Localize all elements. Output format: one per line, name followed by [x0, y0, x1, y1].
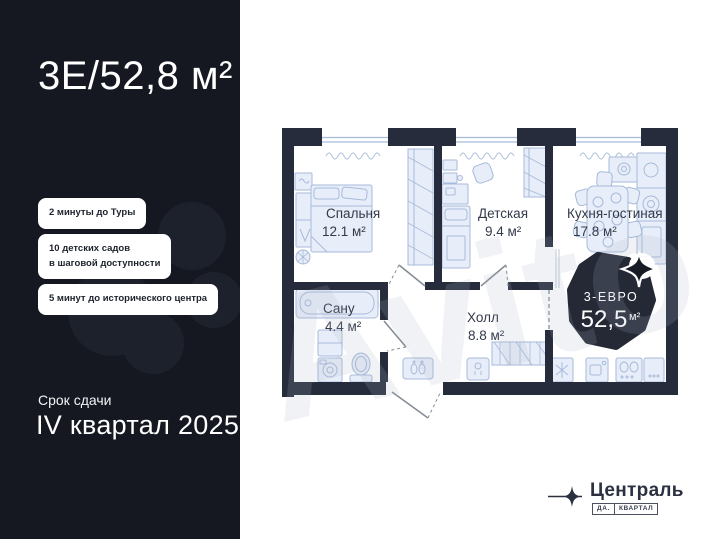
- coat-closet: [492, 342, 549, 365]
- room-area-bedroom: 12.1 м²: [322, 224, 366, 239]
- chair: [596, 172, 612, 188]
- info-panel: 3Е/52,8 м² 2 минуты до Туры 10 детских с…: [0, 0, 240, 539]
- room-name-kitchen: Кухня-гостиная: [567, 206, 663, 221]
- wall-bedroom-bottom: [294, 282, 387, 290]
- wall-bottom: [282, 382, 678, 395]
- ad-canvas: Спальня 12.1 м² Детская 9.4 м² Кухня-гос…: [0, 0, 720, 539]
- deadline-label: Срок сдачи: [38, 392, 111, 408]
- closet-strip: [408, 149, 433, 265]
- shelf: [443, 173, 457, 183]
- cabinet: [644, 358, 664, 382]
- windows: [322, 134, 641, 146]
- room-area-kitchen: 17.8 м²: [573, 224, 617, 239]
- sparkle-line-icon: [548, 483, 586, 509]
- door-entrance: [392, 392, 428, 418]
- room-name-bath: Сану: [323, 301, 355, 316]
- door-bedroom: [399, 265, 425, 286]
- logo-tag-da: ДА.: [592, 503, 615, 515]
- deadline-value: IV квартал 2025: [36, 410, 239, 441]
- pillow: [341, 187, 367, 201]
- wall-bathroom: [380, 282, 388, 320]
- floor-plan: Спальня 12.1 м² Детская 9.4 м² Кухня-гос…: [280, 124, 680, 429]
- room-name-bedroom: Спальня: [326, 206, 380, 221]
- developer-logo: Централь ДА. КВАРТАЛ: [548, 481, 684, 515]
- room-name-kids: Детская: [478, 206, 528, 221]
- feature-badge-2: 10 детских садов в шаговой доступности: [38, 234, 171, 279]
- hall-furniture: [403, 342, 549, 380]
- stove: [616, 358, 642, 382]
- logo-tag-kvartal: КВАРТАЛ: [614, 503, 658, 515]
- pillow: [445, 209, 467, 220]
- wall-kids-bottom: [442, 282, 480, 290]
- pillar: [388, 128, 456, 146]
- logo-brand: Централь: [590, 481, 684, 500]
- feature-badge-3: 5 минут до исторического центра: [38, 284, 218, 315]
- shoe-cabinet: [403, 358, 433, 379]
- room-area-kids: 9.4 м²: [485, 224, 522, 239]
- euro-badge-label: 3-ЕВРО: [584, 290, 639, 304]
- room-name-hall: Холл: [467, 310, 499, 325]
- dresser: [295, 173, 312, 190]
- pillar: [517, 128, 576, 146]
- door-bathroom: [384, 321, 406, 347]
- wall-kitchen: [545, 146, 553, 247]
- room-area-hall: 8.8 м²: [468, 328, 505, 343]
- room-area-bath: 4.4 м²: [325, 319, 362, 334]
- wall-left: [282, 134, 294, 397]
- wall-right: [666, 134, 678, 393]
- euro-badge-unit: м²: [629, 311, 641, 323]
- chair: [471, 161, 494, 184]
- wall-bedroom-kids: [434, 146, 442, 290]
- decor-circle: [122, 312, 184, 374]
- shelf: [443, 160, 457, 170]
- feature-badge-1: 2 минуты до Туры: [38, 198, 146, 229]
- apartment-title: 3Е/52,8 м²: [38, 54, 233, 99]
- euro-badge: 3-ЕВРО 52,5 м²: [571, 251, 656, 346]
- pillow: [314, 188, 339, 199]
- door-kids: [481, 265, 506, 286]
- euro-badge-value: 52,5: [581, 306, 628, 333]
- window-squiggles: [326, 153, 634, 159]
